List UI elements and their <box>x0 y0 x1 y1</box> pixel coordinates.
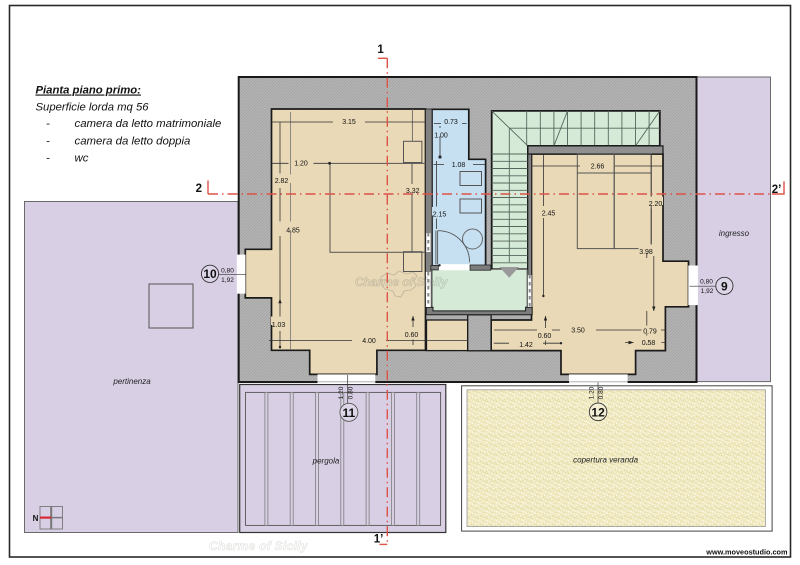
svg-text:pertinenza: pertinenza <box>112 377 151 386</box>
svg-text:2.66: 2.66 <box>591 164 605 171</box>
svg-text:11: 11 <box>343 406 356 420</box>
svg-text:0.60: 0.60 <box>405 332 419 339</box>
svg-text:1.20: 1.20 <box>294 161 308 168</box>
svg-text:4.00: 4.00 <box>362 338 376 345</box>
svg-text:Superficie lorda mq 56: Superficie lorda mq 56 <box>36 102 150 114</box>
svg-text:Charme of Sicily: Charme of Sicily <box>355 275 449 289</box>
svg-text:3.50: 3.50 <box>571 328 585 335</box>
svg-text:1: 1 <box>377 44 384 56</box>
svg-text:N: N <box>33 514 39 523</box>
svg-text:2’: 2’ <box>772 184 782 196</box>
svg-text:0,80: 0,80 <box>700 279 713 286</box>
svg-text:2.15: 2.15 <box>433 212 447 219</box>
svg-text:Charme of Sicily: Charme of Sicily <box>209 539 309 553</box>
svg-text:3.98: 3.98 <box>639 249 653 256</box>
svg-text:4.85: 4.85 <box>286 228 300 235</box>
svg-text:12: 12 <box>591 405 605 419</box>
svg-text:1.03: 1.03 <box>272 322 286 329</box>
svg-text:-: - <box>46 153 50 165</box>
svg-text:copertura veranda: copertura veranda <box>573 456 638 465</box>
svg-text:0.58: 0.58 <box>642 340 656 347</box>
svg-text:camera da letto matrimoniale: camera da letto matrimoniale <box>75 118 222 130</box>
svg-text:wc: wc <box>75 153 89 165</box>
svg-text:9: 9 <box>721 279 728 293</box>
svg-text:0.80: 0.80 <box>598 386 605 399</box>
svg-text:10: 10 <box>203 267 217 281</box>
svg-text:-: - <box>46 136 50 148</box>
svg-text:ingresso: ingresso <box>719 229 750 238</box>
svg-text:0,80: 0,80 <box>221 268 234 275</box>
svg-text:0.73: 0.73 <box>444 119 458 126</box>
svg-text:camera da letto doppia: camera da letto doppia <box>75 136 191 148</box>
svg-text:2.82: 2.82 <box>275 178 289 185</box>
svg-text:0.80: 0.80 <box>348 386 355 399</box>
svg-text:3.15: 3.15 <box>342 119 356 126</box>
svg-text:www.moveostudio.com: www.moveostudio.com <box>705 548 788 557</box>
svg-text:-: - <box>46 118 50 130</box>
svg-text:Pianta piano primo:: Pianta piano primo: <box>36 85 142 97</box>
svg-text:1’: 1’ <box>374 534 384 546</box>
svg-text:1,92: 1,92 <box>701 288 714 295</box>
svg-text:3.32: 3.32 <box>406 188 420 195</box>
svg-text:pergola: pergola <box>312 457 340 466</box>
svg-text:1.08: 1.08 <box>452 162 466 169</box>
svg-text:2.20: 2.20 <box>649 201 663 208</box>
svg-text:2.45: 2.45 <box>542 211 556 218</box>
svg-text:2: 2 <box>196 183 202 195</box>
svg-text:1.20: 1.20 <box>338 386 345 399</box>
svg-text:1.20: 1.20 <box>588 386 595 399</box>
svg-text:1.42: 1.42 <box>519 342 533 349</box>
svg-text:1.00: 1.00 <box>434 133 448 140</box>
svg-text:1,92: 1,92 <box>221 277 234 284</box>
svg-text:0.79: 0.79 <box>643 329 657 336</box>
svg-text:0.60: 0.60 <box>538 333 552 340</box>
